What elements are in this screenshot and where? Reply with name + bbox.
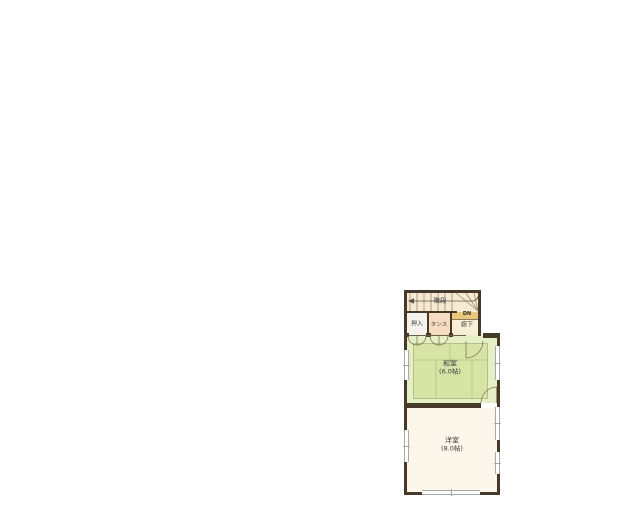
room-size: (6.0帖) [439,368,461,376]
window-mullion [494,463,501,464]
window-mullion [403,446,410,447]
floor-plan: 階段 押入 タンス DN 廊下 和室 (6.0帖) 洋室 (8.0帖) [404,290,500,495]
room-name: 洋室 [445,437,459,445]
room-size: (8.0帖) [441,445,463,453]
western-room-label: 洋室 (8.0帖) [441,437,463,454]
stairs-label: 階段 [434,297,447,304]
room-name: 和室 [443,360,457,368]
wall [478,290,481,336]
wall [404,403,481,408]
window-mullion [451,489,452,496]
wall [404,290,407,495]
oshiire-label: 押入 [411,322,423,329]
closet-door-sill [409,335,466,336]
down-direction-label: DN [463,312,471,318]
tansu-label: タンス [431,322,447,328]
hallway-label: 廊下 [461,323,473,330]
japanese-room-label: 和室 (6.0帖) [439,360,461,377]
window-mullion [403,365,410,366]
window-mullion [494,363,501,364]
wall [427,313,429,335]
wall [404,290,481,293]
window-mullion [494,423,501,424]
wall [450,313,452,335]
